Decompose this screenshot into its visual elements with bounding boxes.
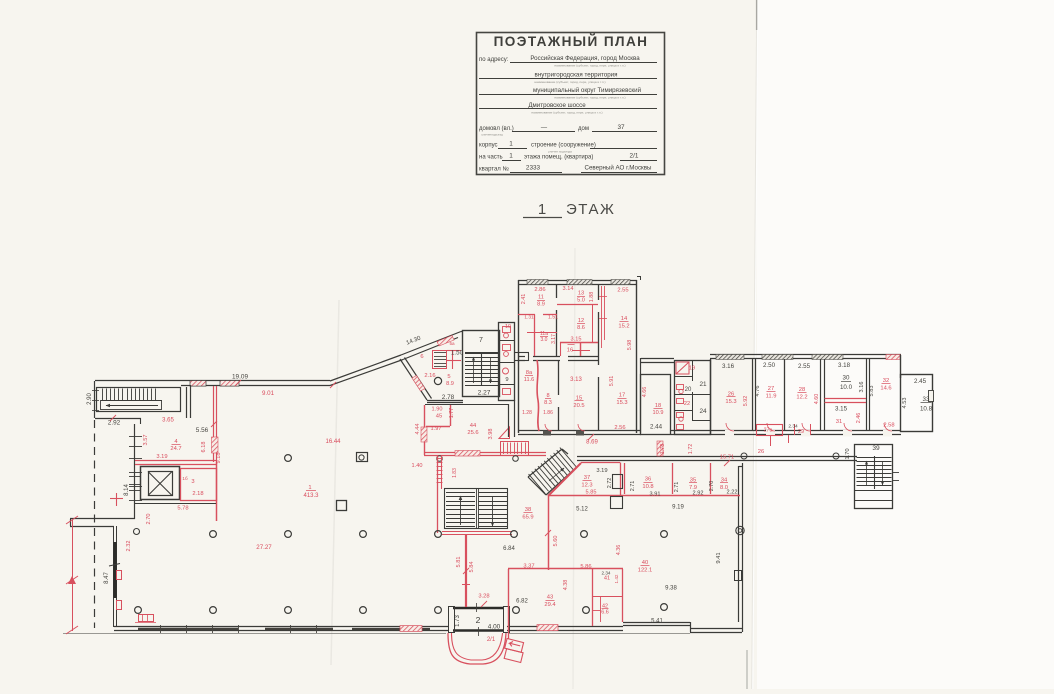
svg-text:2.27: 2.27 bbox=[478, 390, 491, 397]
svg-text:10.8: 10.8 bbox=[642, 484, 653, 490]
svg-text:Дмитровское шоссе: Дмитровское шоссе bbox=[528, 102, 586, 109]
svg-text:6.6: 6.6 bbox=[601, 610, 609, 616]
svg-text:9: 9 bbox=[505, 377, 508, 383]
svg-text:2.34: 2.34 bbox=[788, 424, 798, 430]
svg-text:27а: 27а bbox=[764, 428, 773, 434]
svg-text:8.14: 8.14 bbox=[124, 484, 130, 496]
svg-text:3: 3 bbox=[191, 479, 194, 485]
svg-text:1.77: 1.77 bbox=[449, 408, 455, 419]
svg-text:2: 2 bbox=[476, 615, 481, 625]
svg-text:12.2: 12.2 bbox=[796, 395, 807, 401]
svg-text:27: 27 bbox=[768, 386, 774, 392]
svg-text:2.32: 2.32 bbox=[126, 541, 132, 552]
svg-text:6.18: 6.18 bbox=[201, 442, 207, 453]
svg-text:на часть: на часть bbox=[479, 155, 503, 161]
svg-text:1.70: 1.70 bbox=[845, 448, 851, 459]
svg-text:1.73: 1.73 bbox=[455, 615, 461, 627]
svg-text:8.6: 8.6 bbox=[577, 325, 585, 331]
svg-text:1: 1 bbox=[509, 141, 513, 148]
svg-text:1.90: 1.90 bbox=[432, 407, 443, 413]
svg-text:2.16: 2.16 bbox=[424, 373, 435, 379]
svg-text:33: 33 bbox=[923, 396, 930, 403]
svg-text:3.65: 3.65 bbox=[162, 418, 174, 424]
svg-text:36: 36 bbox=[645, 477, 651, 483]
svg-text:17: 17 bbox=[619, 393, 625, 399]
svg-text:2.41: 2.41 bbox=[521, 294, 527, 305]
svg-text:дом: дом bbox=[578, 126, 589, 132]
svg-text:5.0: 5.0 bbox=[577, 298, 585, 304]
svg-text:1.97: 1.97 bbox=[431, 426, 442, 432]
svg-text:3.15: 3.15 bbox=[835, 406, 848, 413]
svg-text:18: 18 bbox=[655, 403, 661, 409]
svg-text:8.9: 8.9 bbox=[537, 302, 545, 308]
svg-text:5.60: 5.60 bbox=[553, 536, 559, 547]
svg-text:2.18: 2.18 bbox=[192, 491, 203, 497]
svg-text:2.92: 2.92 bbox=[108, 420, 121, 427]
svg-text:37: 37 bbox=[584, 475, 590, 481]
svg-text:строение (сооружение): строение (сооружение) bbox=[531, 143, 596, 149]
svg-text:6: 6 bbox=[420, 354, 423, 360]
svg-text:4.44: 4.44 bbox=[415, 424, 421, 435]
svg-text:5.92: 5.92 bbox=[743, 396, 749, 407]
svg-text:8.9: 8.9 bbox=[446, 381, 454, 387]
svg-text:3.16: 3.16 bbox=[722, 363, 735, 370]
svg-text:наименование (субъект, город,: наименование (субъект, город, пере, улиц… bbox=[534, 80, 605, 84]
svg-text:2.71: 2.71 bbox=[630, 481, 636, 492]
svg-text:5.12: 5.12 bbox=[576, 507, 588, 513]
svg-text:39: 39 bbox=[872, 445, 880, 452]
svg-text:3.57: 3.57 bbox=[143, 435, 149, 446]
svg-text:8а: 8а bbox=[526, 370, 533, 376]
svg-text:квартал №: квартал № bbox=[479, 166, 509, 173]
svg-text:2.72: 2.72 bbox=[607, 478, 613, 489]
svg-text:4.60: 4.60 bbox=[814, 394, 820, 405]
svg-text:6.84: 6.84 bbox=[503, 546, 515, 552]
svg-text:5.56: 5.56 bbox=[196, 427, 209, 434]
svg-text:1.51: 1.51 bbox=[548, 315, 558, 321]
svg-text:муниципальный округ Тимирязевс: муниципальный округ Тимирязевский bbox=[533, 87, 642, 94]
svg-text:1: 1 bbox=[308, 485, 311, 491]
svg-text:5.98: 5.98 bbox=[627, 340, 633, 351]
svg-text:4.38: 4.38 bbox=[563, 580, 569, 591]
svg-text:16.44: 16.44 bbox=[325, 439, 341, 445]
svg-text:32: 32 bbox=[883, 378, 889, 384]
svg-text:2333: 2333 bbox=[526, 165, 541, 172]
svg-text:1б: 1б bbox=[182, 476, 188, 481]
svg-text:2.22: 2.22 bbox=[727, 490, 738, 496]
svg-text:1.40: 1.40 bbox=[412, 463, 423, 469]
svg-text:8.69: 8.69 bbox=[586, 440, 598, 446]
svg-text:5.41: 5.41 bbox=[651, 619, 663, 625]
svg-text:26: 26 bbox=[758, 449, 764, 455]
svg-text:19: 19 bbox=[689, 366, 695, 372]
svg-text:1.42: 1.42 bbox=[614, 574, 619, 583]
svg-text:3.0: 3.0 bbox=[541, 337, 548, 343]
svg-text:уличенподъезд: уличенподъезд bbox=[481, 133, 502, 137]
svg-text:16: 16 bbox=[567, 348, 573, 354]
svg-text:15.3: 15.3 bbox=[725, 399, 736, 405]
svg-text:15.71: 15.71 bbox=[720, 455, 735, 461]
svg-text:9.41: 9.41 bbox=[716, 552, 722, 563]
svg-text:Российская Федерация, город Мо: Российская Федерация, город Москва bbox=[530, 55, 640, 62]
svg-text:10: 10 bbox=[505, 324, 511, 330]
svg-text:5.81: 5.81 bbox=[456, 557, 462, 568]
svg-text:3.91: 3.91 bbox=[650, 492, 661, 498]
svg-text:65.9: 65.9 bbox=[522, 515, 533, 521]
svg-text:38: 38 bbox=[525, 507, 531, 513]
svg-text:2.34: 2.34 bbox=[602, 571, 611, 576]
svg-text:19.09: 19.09 bbox=[232, 374, 248, 381]
svg-text:3.98: 3.98 bbox=[488, 429, 494, 440]
svg-text:11: 11 bbox=[538, 295, 544, 301]
svg-text:44: 44 bbox=[470, 423, 477, 429]
svg-text:1: 1 bbox=[509, 153, 513, 160]
svg-text:2/1: 2/1 bbox=[487, 637, 496, 643]
svg-text:10.8: 10.8 bbox=[920, 406, 933, 413]
svg-text:5.85: 5.85 bbox=[586, 490, 597, 496]
svg-text:3.15: 3.15 bbox=[571, 337, 582, 343]
svg-text:2.50: 2.50 bbox=[763, 362, 776, 369]
svg-text:3.16: 3.16 bbox=[859, 382, 865, 393]
svg-text:29: 29 bbox=[798, 429, 804, 435]
svg-text:43: 43 bbox=[547, 595, 553, 601]
svg-text:2/1: 2/1 bbox=[630, 153, 639, 160]
svg-text:2.55: 2.55 bbox=[798, 363, 811, 370]
svg-text:5а: 5а bbox=[449, 341, 455, 346]
svg-text:3.28: 3.28 bbox=[478, 594, 489, 600]
svg-text:13: 13 bbox=[578, 291, 584, 297]
svg-text:4.76: 4.76 bbox=[755, 386, 761, 397]
svg-text:3.19: 3.19 bbox=[156, 454, 167, 460]
svg-text:9.19: 9.19 bbox=[672, 505, 684, 511]
svg-text:3.13: 3.13 bbox=[570, 377, 582, 383]
svg-text:5.78: 5.78 bbox=[177, 506, 188, 512]
svg-text:22: 22 bbox=[684, 401, 690, 407]
svg-text:1.88: 1.88 bbox=[589, 292, 595, 303]
svg-text:4.00: 4.00 bbox=[488, 624, 501, 631]
svg-text:12: 12 bbox=[578, 318, 584, 324]
svg-text:4.36: 4.36 bbox=[616, 545, 622, 556]
svg-text:1.50: 1.50 bbox=[451, 350, 464, 357]
svg-text:30: 30 bbox=[843, 375, 850, 382]
svg-text:домовл (вл.): домовл (вл.) bbox=[479, 126, 514, 132]
svg-text:1.72: 1.72 bbox=[688, 444, 694, 455]
svg-text:9.38: 9.38 bbox=[665, 586, 677, 592]
svg-text:2.44: 2.44 bbox=[650, 424, 663, 431]
svg-text:корпус: корпус bbox=[479, 143, 498, 149]
svg-text:3.19: 3.19 bbox=[596, 468, 607, 474]
svg-text:3.17: 3.17 bbox=[551, 334, 557, 344]
svg-text:5.84: 5.84 bbox=[469, 562, 475, 573]
svg-text:наименование (субъект, город,: наименование (субъект, город, пере, улиц… bbox=[554, 64, 625, 68]
svg-text:8.47: 8.47 bbox=[104, 572, 110, 584]
svg-text:2.55: 2.55 bbox=[617, 288, 628, 294]
svg-text:8: 8 bbox=[546, 393, 549, 399]
svg-text:2.58: 2.58 bbox=[883, 423, 894, 429]
svg-text:4.53: 4.53 bbox=[902, 398, 908, 409]
svg-text:1.86: 1.86 bbox=[543, 410, 553, 416]
svg-text:20.5: 20.5 bbox=[573, 403, 584, 409]
svg-text:3.18: 3.18 bbox=[838, 362, 851, 369]
svg-text:1.31: 1.31 bbox=[524, 315, 534, 321]
svg-text:этажа помещ. (квартира): этажа помещ. (квартира) bbox=[524, 155, 593, 161]
svg-text:уличен подъезда: уличен подъезда bbox=[548, 150, 572, 154]
svg-text:15.2: 15.2 bbox=[618, 324, 629, 330]
svg-text:5.86: 5.86 bbox=[580, 564, 591, 570]
svg-text:2.92: 2.92 bbox=[693, 491, 704, 497]
svg-text:ПОЭТАЖНЫЙ ПЛАН: ПОЭТАЖНЫЙ ПЛАН bbox=[494, 34, 649, 49]
svg-text:24: 24 bbox=[699, 408, 707, 415]
svg-text:2.70: 2.70 bbox=[146, 514, 152, 525]
svg-text:8.3: 8.3 bbox=[544, 400, 552, 406]
svg-text:5.91: 5.91 bbox=[609, 376, 615, 387]
svg-text:5.83: 5.83 bbox=[869, 386, 875, 397]
svg-text:Северный АО г.Москвы: Северный АО г.Москвы bbox=[585, 165, 653, 172]
svg-text:20: 20 bbox=[685, 387, 692, 393]
svg-text:1.78: 1.78 bbox=[660, 444, 666, 455]
svg-text:413.3: 413.3 bbox=[303, 493, 319, 499]
svg-text:2.90: 2.90 bbox=[87, 393, 93, 405]
svg-text:5: 5 bbox=[447, 374, 450, 380]
svg-text:ЭТАЖ: ЭТАЖ bbox=[566, 201, 615, 218]
svg-text:9.01: 9.01 bbox=[262, 390, 275, 397]
svg-text:40: 40 bbox=[642, 560, 648, 566]
svg-text:4.66: 4.66 bbox=[642, 387, 648, 398]
svg-text:2.70: 2.70 bbox=[709, 481, 715, 492]
svg-text:9.18: 9.18 bbox=[216, 453, 222, 464]
svg-text:10.0: 10.0 bbox=[840, 384, 853, 391]
svg-text:—: — bbox=[541, 124, 548, 131]
svg-text:31: 31 bbox=[836, 419, 842, 425]
svg-text:2.86: 2.86 bbox=[534, 287, 545, 293]
svg-text:122.1: 122.1 bbox=[638, 568, 653, 574]
svg-text:наименование (субъект, город,: наименование (субъект, город, пере, улиц… bbox=[531, 111, 602, 115]
svg-text:29.4: 29.4 bbox=[544, 602, 556, 608]
svg-text:2.78: 2.78 bbox=[442, 394, 455, 401]
svg-text:11.6: 11.6 bbox=[524, 377, 534, 383]
svg-text:37: 37 bbox=[617, 124, 625, 131]
svg-text:41: 41 bbox=[604, 576, 610, 582]
svg-text:6.82: 6.82 bbox=[516, 599, 528, 605]
svg-text:2.71: 2.71 bbox=[674, 482, 680, 493]
svg-text:1: 1 bbox=[538, 201, 546, 218]
svg-text:10.9: 10.9 bbox=[653, 410, 664, 416]
svg-text:2.46: 2.46 bbox=[856, 413, 862, 424]
svg-text:1.83: 1.83 bbox=[452, 468, 458, 478]
svg-text:1.28: 1.28 bbox=[522, 410, 532, 416]
svg-text:3.14: 3.14 bbox=[563, 286, 574, 292]
svg-text:14: 14 bbox=[621, 316, 628, 322]
svg-text:27.27: 27.27 bbox=[256, 544, 272, 551]
svg-text:7: 7 bbox=[479, 337, 483, 344]
svg-text:11.9: 11.9 bbox=[766, 394, 777, 400]
svg-text:внутригородская территория: внутригородская территория bbox=[535, 72, 618, 79]
svg-text:по адресу:: по адресу: bbox=[479, 57, 509, 63]
svg-text:12.3: 12.3 bbox=[581, 483, 592, 489]
svg-text:45: 45 bbox=[436, 414, 442, 420]
svg-text:28: 28 bbox=[799, 387, 805, 393]
svg-text:2.56: 2.56 bbox=[614, 425, 625, 431]
svg-text:25.6: 25.6 bbox=[467, 430, 478, 436]
svg-text:2.45: 2.45 bbox=[914, 378, 927, 385]
svg-text:14.6: 14.6 bbox=[880, 386, 891, 392]
svg-text:24.7: 24.7 bbox=[170, 446, 181, 452]
svg-text:15.3: 15.3 bbox=[616, 400, 627, 406]
svg-text:наименование (субъект, город,: наименование (субъект, город, пере, улиц… bbox=[554, 96, 625, 100]
svg-text:21: 21 bbox=[699, 381, 707, 388]
svg-text:3.37: 3.37 bbox=[523, 564, 534, 570]
